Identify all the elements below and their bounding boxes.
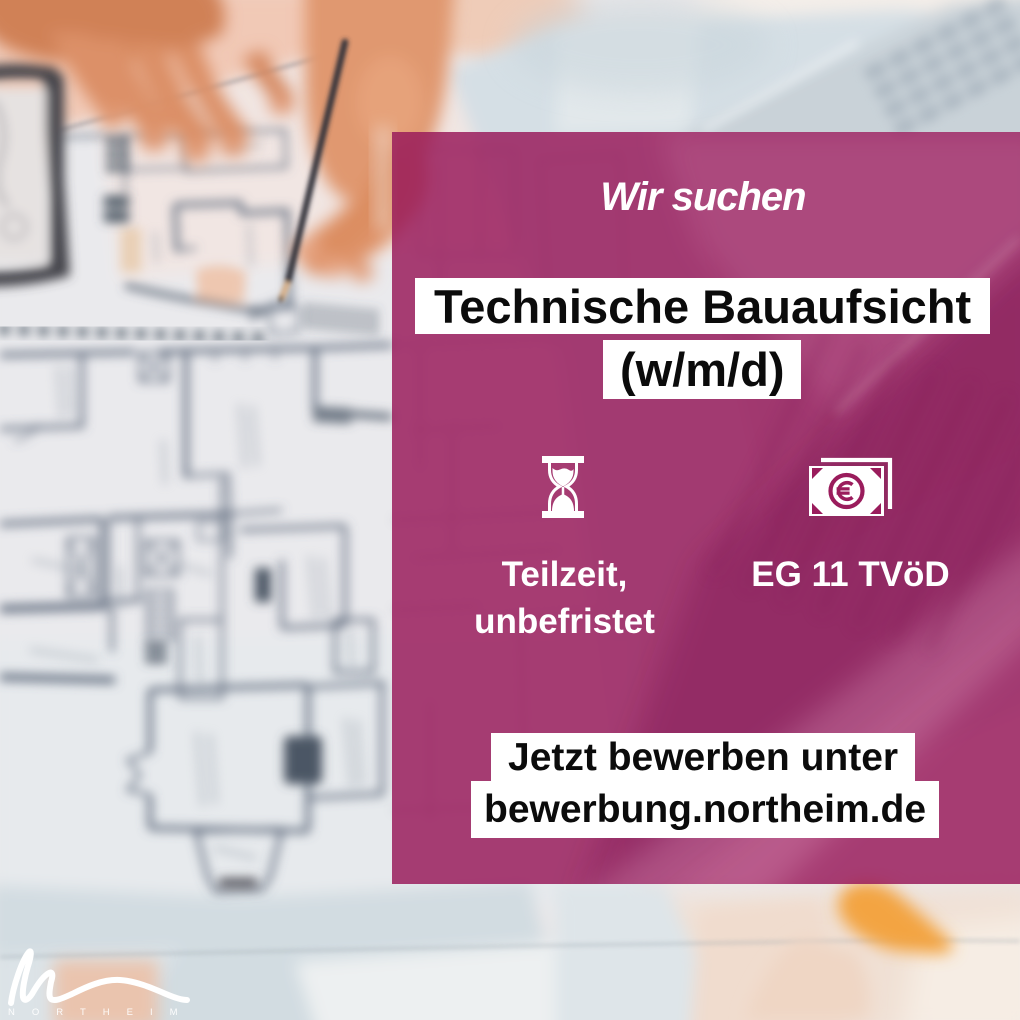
svg-text:NORTHEIM: NORTHEIM bbox=[8, 1007, 195, 1018]
